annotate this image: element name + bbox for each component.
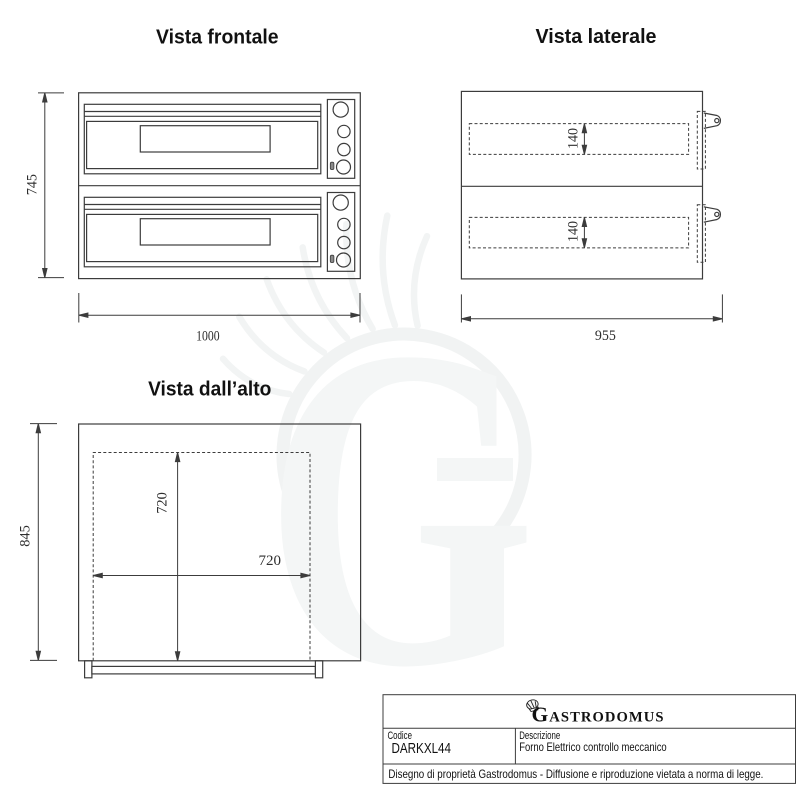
svg-text:Vista dall’alto: Vista dall’alto: [148, 378, 271, 401]
svg-text:720: 720: [258, 553, 281, 569]
svg-text:140: 140: [565, 221, 581, 242]
svg-text:G: G: [264, 253, 536, 762]
svg-text:Disegno di proprietà Gastrodom: Disegno di proprietà Gastrodomus - Diffu…: [388, 767, 763, 781]
svg-text:745: 745: [24, 174, 40, 195]
svg-text:140: 140: [565, 128, 581, 149]
svg-text:Vista laterale: Vista laterale: [536, 25, 657, 48]
svg-text:1000: 1000: [196, 328, 220, 344]
svg-text:DARKXL44: DARKXL44: [392, 740, 452, 757]
svg-text:Forno Elettrico controllo mecc: Forno Elettrico controllo meccanico: [519, 740, 667, 754]
svg-text:720: 720: [154, 492, 170, 514]
svg-text:Vista frontale: Vista frontale: [156, 26, 279, 49]
svg-text:955: 955: [595, 328, 616, 344]
svg-text:GASTRODOMUS: GASTRODOMUS: [532, 703, 664, 727]
svg-text:845: 845: [18, 525, 34, 547]
